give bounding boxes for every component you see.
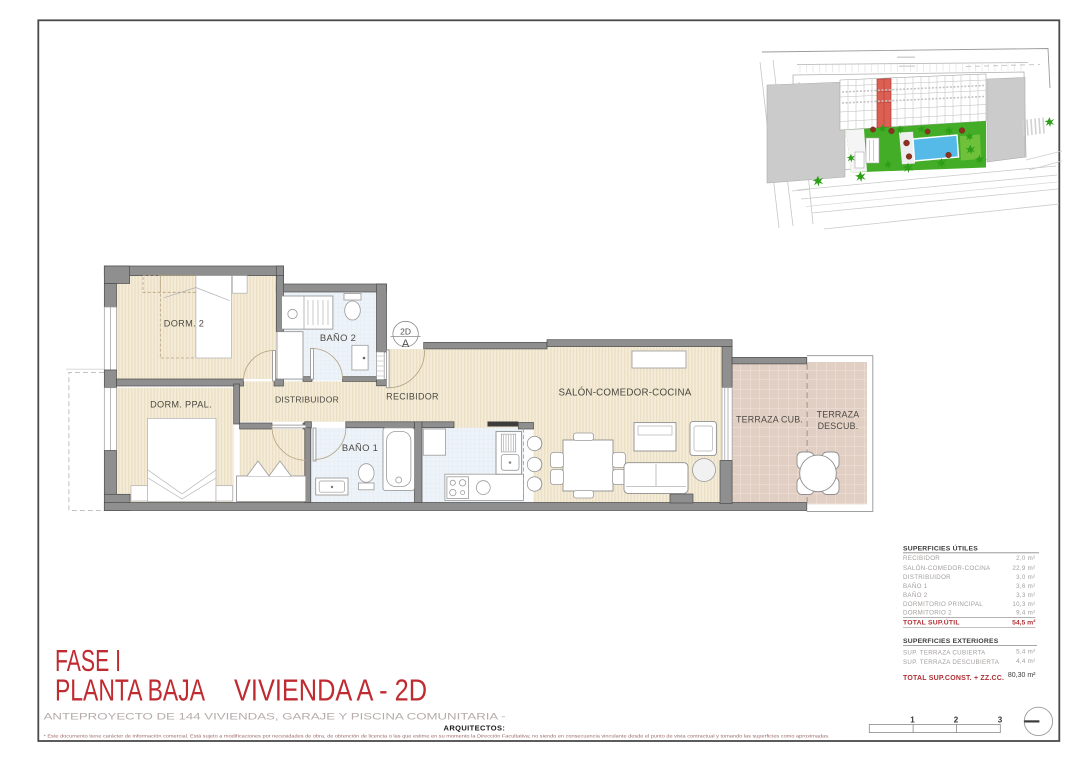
svg-text:5,4 m²: 5,4 m² (1016, 649, 1035, 656)
svg-text:DORM. PPAL.: DORM. PPAL. (150, 400, 212, 410)
svg-text:TERRAZA CUB.: TERRAZA CUB. (736, 415, 803, 425)
svg-text:10,3 m²: 10,3 m² (1012, 601, 1035, 608)
svg-text:SUP. TERRAZA DESCUBIERTA: SUP. TERRAZA DESCUBIERTA (903, 659, 1000, 666)
svg-text:BAÑO 2: BAÑO 2 (320, 332, 356, 343)
svg-text:PLANTA BAJA: PLANTA BAJA (55, 673, 205, 708)
svg-text:DISTRIBUIDOR: DISTRIBUIDOR (275, 395, 339, 405)
svg-text:3,3 m²: 3,3 m² (1016, 592, 1035, 599)
svg-text:VIVIENDA A - 2D: VIVIENDA A - 2D (234, 673, 427, 708)
svg-text:TOTAL SUP.CONST. + ZZ.CC.: TOTAL SUP.CONST. + ZZ.CC. (903, 675, 1004, 682)
svg-text:SALÓN-COMEDOR-COCINA: SALÓN-COMEDOR-COCINA (903, 565, 991, 572)
svg-text:22,9 m²: 22,9 m² (1012, 565, 1035, 572)
svg-text:2D: 2D (400, 327, 411, 337)
svg-text:DORM. 2: DORM. 2 (164, 319, 204, 329)
svg-text:DORMITORIO 2: DORMITORIO 2 (903, 610, 952, 617)
svg-text:* Este documento tiene carácte: * Este documento tiene carácter de infor… (44, 734, 830, 740)
svg-text:TOTAL SUP.ÚTIL: TOTAL SUP.ÚTIL (903, 618, 960, 627)
svg-text:3,0 m²: 3,0 m² (1016, 574, 1035, 581)
svg-text:SUP. TERRAZA CUBIERTA: SUP. TERRAZA CUBIERTA (903, 650, 986, 657)
svg-text:DORMITORIO PRINCIPAL: DORMITORIO PRINCIPAL (903, 601, 983, 608)
svg-text:ARQUITECTOS:: ARQUITECTOS: (444, 724, 506, 733)
svg-text:BAÑO 2: BAÑO 2 (903, 592, 928, 599)
svg-text:9,4 m²: 9,4 m² (1016, 610, 1035, 617)
svg-text:3,6 m²: 3,6 m² (1016, 583, 1035, 590)
svg-text:2,0 m²: 2,0 m² (1016, 555, 1035, 562)
svg-text:54,5 m²: 54,5 m² (1012, 620, 1036, 627)
svg-text:1: 1 (910, 716, 915, 725)
svg-text:DISTRIBUIDOR: DISTRIBUIDOR (903, 574, 951, 581)
svg-text:TERRAZA: TERRAZA (817, 410, 860, 420)
svg-text:80,30 m²: 80,30 m² (1008, 672, 1036, 679)
svg-text:A: A (402, 338, 410, 350)
svg-text:4,4 m²: 4,4 m² (1016, 658, 1035, 665)
svg-text:SUPERFICIES ÚTILES: SUPERFICIES ÚTILES (903, 544, 978, 553)
svg-text:SALÓN-COMEDOR-COCINA: SALÓN-COMEDOR-COCINA (558, 388, 691, 399)
svg-text:DESCUB.: DESCUB. (818, 421, 859, 431)
svg-text:SUPERFICIES EXTERIORES: SUPERFICIES EXTERIORES (903, 638, 999, 645)
svg-text:RECIBIDOR: RECIBIDOR (386, 392, 439, 402)
svg-text:RECIBIDOR: RECIBIDOR (903, 555, 940, 562)
svg-text:BAÑO 1: BAÑO 1 (342, 442, 378, 453)
svg-text:BAÑO 1: BAÑO 1 (903, 583, 928, 590)
svg-text:2: 2 (954, 716, 959, 725)
svg-text:3: 3 (998, 716, 1003, 725)
svg-text:ANTEPROYECTO DE 144 VIVIENDAS,: ANTEPROYECTO DE 144 VIVIENDAS, GARAJE Y … (44, 712, 506, 722)
